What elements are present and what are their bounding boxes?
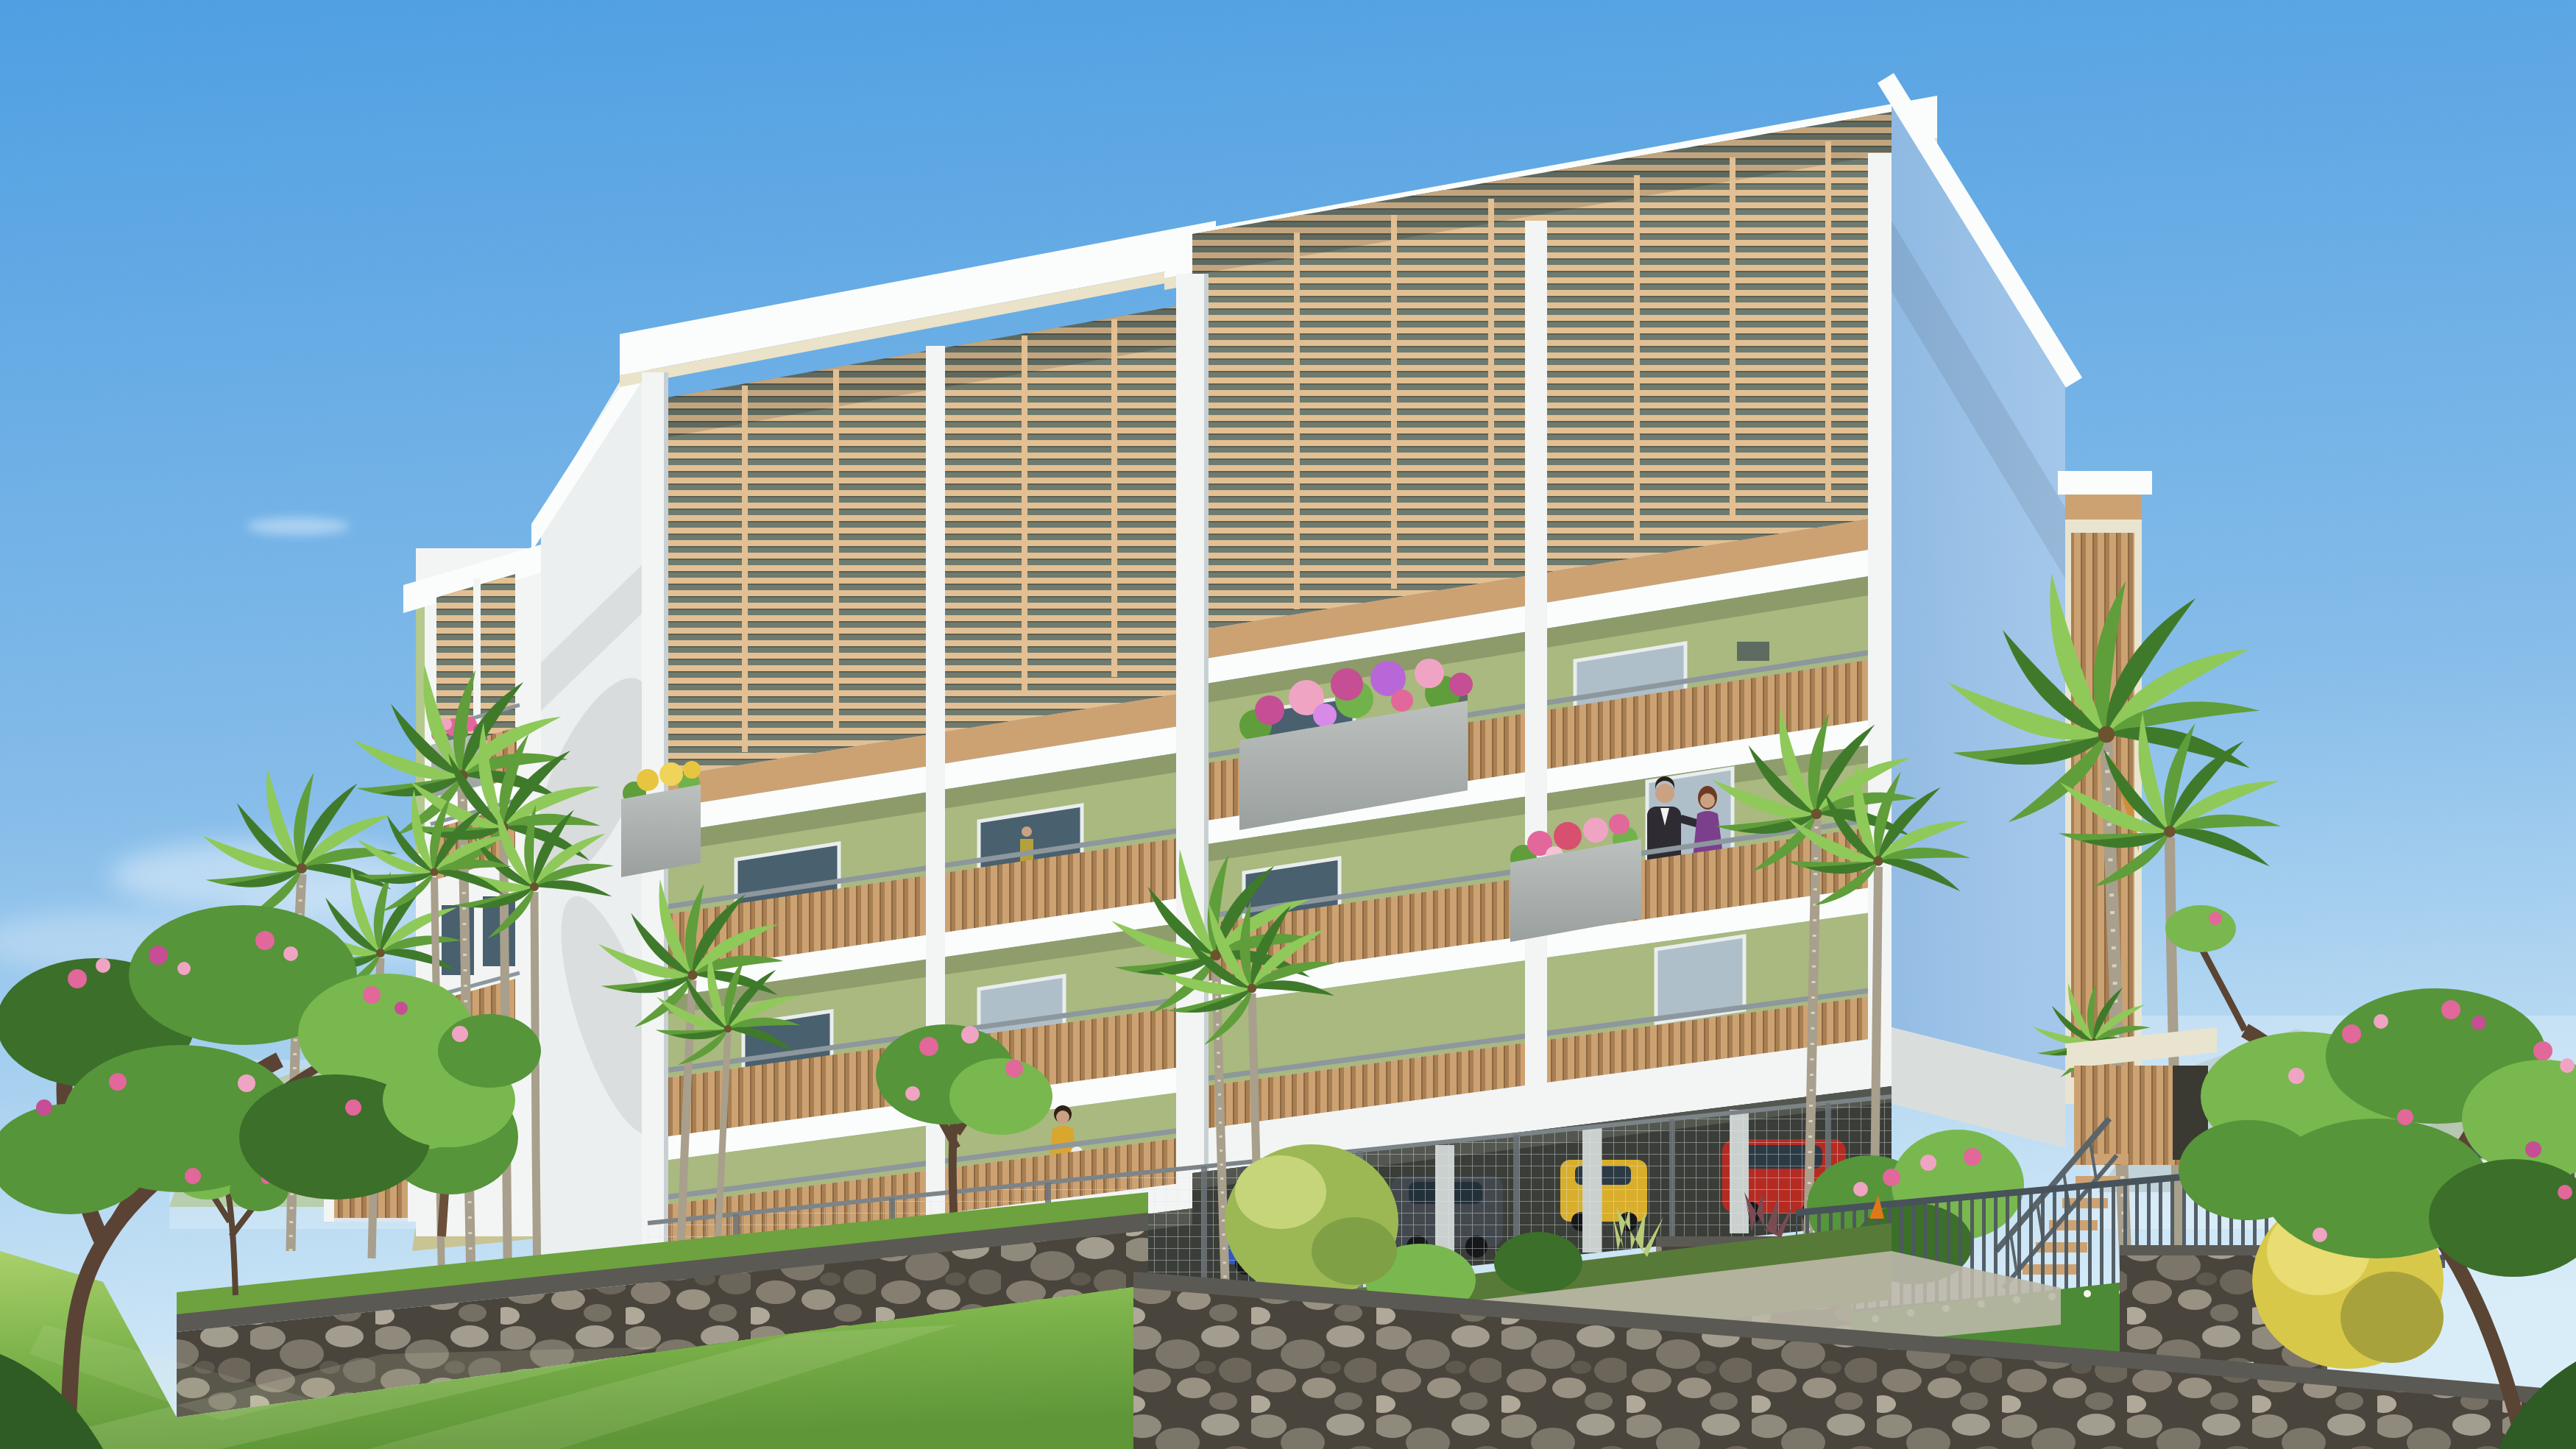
column-bay-seam — [1176, 274, 1207, 1194]
stair-tower-canopy — [2058, 471, 2152, 495]
architectural-rendering — [0, 0, 2576, 1449]
man-head — [1655, 784, 1674, 803]
rendering-stage — [0, 0, 2576, 1449]
yellow-planter-box — [621, 784, 701, 877]
bay-b — [1164, 96, 1937, 1173]
window-figure-head — [1022, 826, 1032, 837]
woman-purple-head — [1700, 793, 1715, 808]
stair-tower-rafters — [2065, 495, 2142, 520]
column-bay-b-divider — [1525, 221, 1547, 1126]
woman-yellow-head — [1056, 1110, 1069, 1124]
